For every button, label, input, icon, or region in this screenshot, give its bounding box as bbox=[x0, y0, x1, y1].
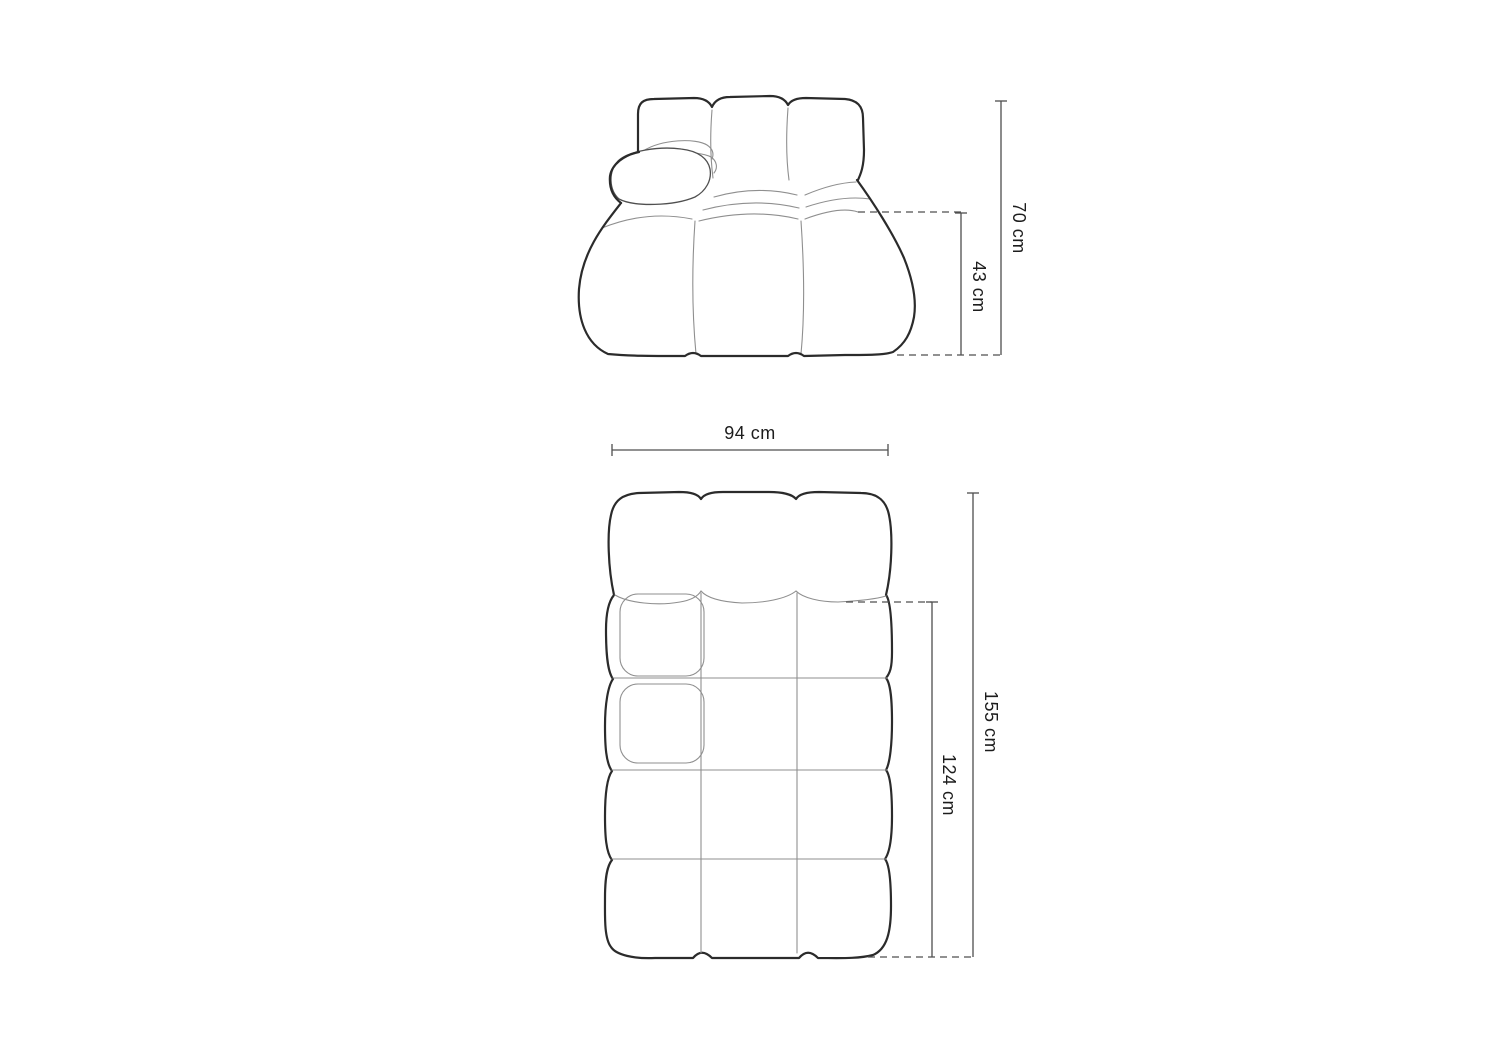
seat-body-fill bbox=[578, 180, 915, 354]
dimension-drawing-page: 70 cm 43 cm 94 cm bbox=[0, 0, 1500, 1060]
dimension-label-124cm: 124 cm bbox=[939, 754, 959, 816]
front-view: 70 cm 43 cm bbox=[578, 96, 1029, 356]
dimension-label-155cm: 155 cm bbox=[981, 691, 1001, 753]
dimension-label-70cm: 70 cm bbox=[1009, 202, 1029, 254]
dimension-94cm: 94 cm bbox=[612, 423, 888, 456]
sofa-dimension-diagram: 70 cm 43 cm 94 cm bbox=[0, 0, 1500, 1060]
dimension-124cm: 124 cm bbox=[926, 602, 959, 957]
dimension-label-43cm: 43 cm bbox=[969, 261, 989, 313]
dimension-label-94cm: 94 cm bbox=[724, 423, 776, 443]
dimension-155cm: 155 cm bbox=[967, 493, 1001, 957]
dimension-43cm: 43 cm bbox=[955, 213, 989, 355]
top-view: 94 cm 155 cm bbox=[605, 423, 1001, 958]
plan-silhouette bbox=[605, 492, 892, 958]
dimension-70cm: 70 cm bbox=[995, 101, 1029, 355]
